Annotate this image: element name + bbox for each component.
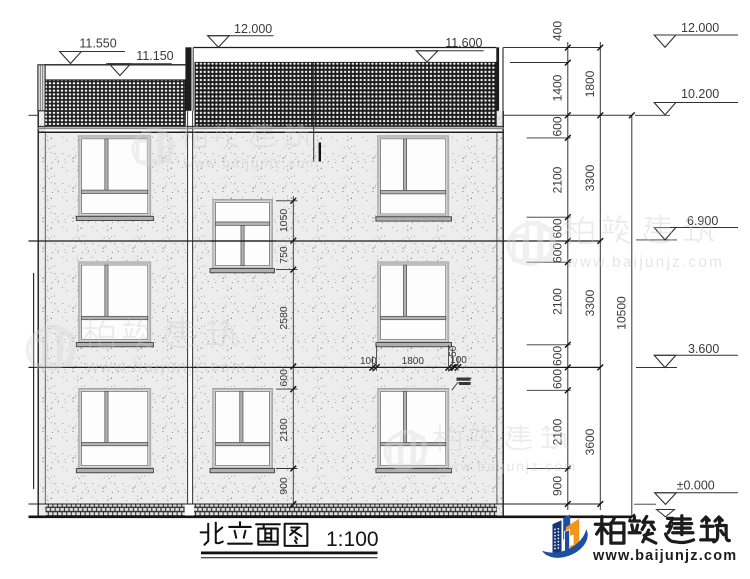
svg-text:2580: 2580 (278, 306, 290, 330)
svg-text:600: 600 (278, 369, 290, 387)
svg-text:±0.000: ±0.000 (677, 479, 715, 493)
svg-text:3300: 3300 (583, 289, 597, 316)
svg-text:1:100: 1:100 (326, 528, 379, 551)
svg-text:900: 900 (550, 476, 564, 496)
svg-text:3.600: 3.600 (688, 342, 719, 356)
svg-text:50: 50 (448, 345, 459, 357)
svg-text:100: 100 (360, 356, 377, 367)
svg-text:600: 600 (550, 346, 564, 366)
svg-text:www.baijunjz.com: www.baijunjz.com (592, 548, 737, 564)
svg-text:1800: 1800 (402, 356, 425, 367)
svg-text:2100: 2100 (550, 166, 564, 193)
svg-text:12.000: 12.000 (681, 21, 719, 35)
svg-text:11.550: 11.550 (79, 37, 116, 51)
svg-text:10500: 10500 (614, 296, 628, 330)
svg-text:600: 600 (550, 116, 564, 136)
svg-text:3300: 3300 (583, 164, 597, 191)
svg-text:1800: 1800 (583, 70, 597, 97)
svg-text:12.000: 12.000 (234, 22, 272, 36)
svg-text:www.baijunjz.com: www.baijunjz.com (182, 156, 319, 171)
svg-text:3600: 3600 (583, 428, 597, 455)
svg-text:11.150: 11.150 (136, 49, 173, 63)
svg-text:400: 400 (550, 21, 564, 41)
svg-text:www.baijunjz.com: www.baijunjz.com (86, 359, 247, 376)
svg-text:2100: 2100 (278, 418, 290, 442)
svg-text:www.baijunjz.com: www.baijunjz.com (436, 459, 577, 474)
svg-text:2100: 2100 (550, 288, 564, 315)
svg-text:1400: 1400 (550, 74, 564, 101)
svg-text:www.baijunjz.com: www.baijunjz.com (566, 254, 725, 271)
svg-text:11.600: 11.600 (445, 36, 482, 50)
svg-text:750: 750 (278, 246, 290, 264)
svg-text:600: 600 (550, 369, 564, 389)
svg-text:900: 900 (278, 477, 290, 495)
svg-text:10.200: 10.200 (681, 87, 719, 101)
svg-text:1050: 1050 (278, 209, 290, 233)
